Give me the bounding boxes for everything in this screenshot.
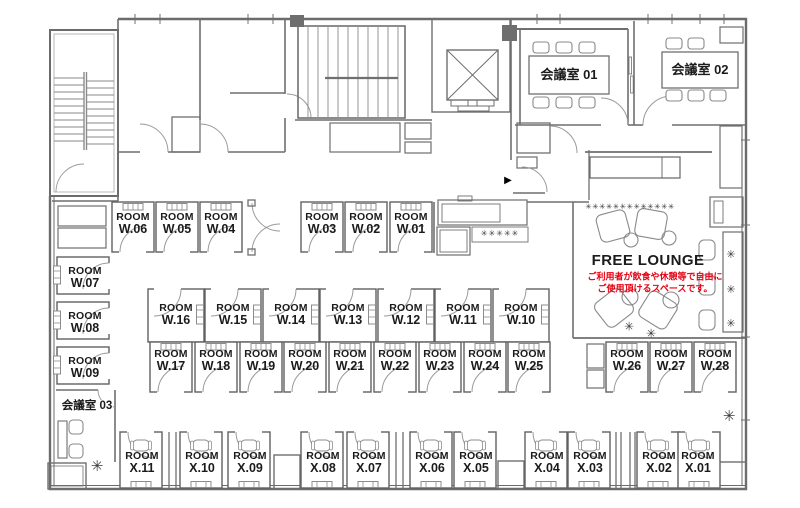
room-label-x10: ROOMX.10 xyxy=(185,451,218,475)
room-label-w13: ROOMW.13 xyxy=(331,303,364,327)
room-label-x04: ROOMX.04 xyxy=(530,451,563,475)
plant-icon: ✳ xyxy=(723,409,736,425)
room-label-w22: ROOMW.22 xyxy=(378,349,411,373)
room-label-w21: ROOMW.21 xyxy=(333,349,366,373)
room-cells xyxy=(54,202,737,488)
room-label-w24: ROOMW.24 xyxy=(468,349,501,373)
room-label-w07: ROOMW.07 xyxy=(68,266,101,290)
plant-icon: ✳ xyxy=(646,328,656,341)
plant-icon: ✳ xyxy=(726,250,735,262)
room-label-x06: ROOMX.06 xyxy=(415,451,448,475)
plant-icon: ✳ xyxy=(624,321,634,334)
room-label-w09: ROOMW.09 xyxy=(68,356,101,380)
room-label-x02: ROOMX.02 xyxy=(642,451,675,475)
room-label-x01: ROOMX.01 xyxy=(681,451,714,475)
room-label-x07: ROOMX.07 xyxy=(352,451,385,475)
room-label-w19: ROOMW.19 xyxy=(244,349,277,373)
plant-icon: ✳ xyxy=(91,459,104,475)
room-label-x09: ROOMX.09 xyxy=(233,451,266,475)
room-label-w18: ROOMW.18 xyxy=(199,349,232,373)
elevator xyxy=(432,19,517,160)
plants-row-icon: ✳✳✳✳✳✳✳✳✳✳✳✳✳ xyxy=(585,203,675,211)
room-label-w20: ROOMW.20 xyxy=(288,349,321,373)
meeting-room-03-label: 会議室 03 xyxy=(62,400,113,412)
room-label-w10: ROOMW.10 xyxy=(504,303,537,327)
lounge-title: FREE LOUNGE xyxy=(592,253,705,269)
stairs-central xyxy=(290,15,432,153)
room-label-w06: ROOMW.06 xyxy=(116,212,149,236)
corridor-double-door xyxy=(248,200,280,255)
room-label-w08: ROOMW.08 xyxy=(68,311,101,335)
floor-plan: ROOMW.06 ROOMW.05 ROOMW.04 ROOMW.03 ROOM… xyxy=(0,0,800,508)
room-label-w05: ROOMW.05 xyxy=(160,212,193,236)
room-label-w17: ROOMW.17 xyxy=(154,349,187,373)
room-label-w02: ROOMW.02 xyxy=(349,212,382,236)
room-label-x03: ROOMX.03 xyxy=(573,451,606,475)
room-label-w15: ROOMW.15 xyxy=(216,303,249,327)
meeting-room-02-label: 会議室 02 xyxy=(668,63,731,77)
meeting-room-01-label: 会議室 01 xyxy=(537,68,600,82)
room-label-x11: ROOMX.11 xyxy=(125,451,158,475)
room-label-w11: ROOMW.11 xyxy=(446,303,479,327)
room-label-w12: ROOMW.12 xyxy=(389,303,422,327)
room-label-x05: ROOMX.05 xyxy=(459,451,492,475)
plant-icon: ✳ xyxy=(726,319,735,331)
room-label-w14: ROOMW.14 xyxy=(274,303,307,327)
room-label-w25: ROOMW.25 xyxy=(512,349,545,373)
plant-icon: ✳ xyxy=(726,285,735,297)
room-label-x08: ROOMX.08 xyxy=(306,451,339,475)
room-label-w27: ROOMW.27 xyxy=(654,349,687,373)
lounge-note-line2: ご使用頂けるスペースです。 xyxy=(597,284,712,293)
room-label-w26: ROOMW.26 xyxy=(610,349,643,373)
plants-row-small-icon: ✳✳✳✳✳ xyxy=(481,230,520,238)
entrance-arrow-icon: ▶ xyxy=(504,176,512,187)
room-label-w16: ROOMW.16 xyxy=(159,303,192,327)
stairs-northwest xyxy=(54,34,114,192)
room-label-w23: ROOMW.23 xyxy=(423,349,456,373)
reception-counter xyxy=(434,196,528,255)
room-label-w04: ROOMW.04 xyxy=(204,212,237,236)
room-label-w01: ROOMW.01 xyxy=(394,212,427,236)
room-label-w03: ROOMW.03 xyxy=(305,212,338,236)
room-label-w28: ROOMW.28 xyxy=(698,349,731,373)
lounge-note-line1: ご利用者が飲食や休憩等で自由に xyxy=(587,272,722,281)
